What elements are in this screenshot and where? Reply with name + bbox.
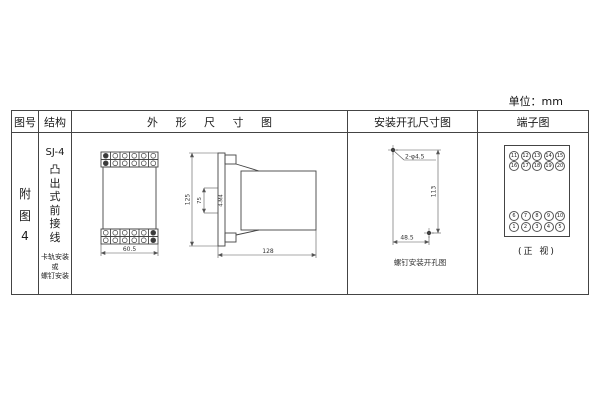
terminal-row: 678910 — [505, 211, 569, 221]
terminal-16: 16 — [509, 161, 519, 171]
side-view — [218, 153, 316, 246]
side-height-dimension — [189, 153, 220, 246]
terminal-row: 12345 — [505, 222, 569, 232]
cell-terminal-diagram: 11121314151617181920 67891012345 (正 视) — [478, 133, 588, 294]
figure-no-char: 4 — [21, 229, 29, 243]
dimension-table: 图号 结构 外 形 尺 寸 图 安装开孔尺寸图 端子图 附 图 4 SJ-4 凸… — [11, 110, 589, 295]
horizontal-dimension — [393, 152, 429, 245]
table-header-row: 图号 结构 外 形 尺 寸 图 安装开孔尺寸图 端子图 — [12, 111, 588, 133]
header-figure-no: 图号 — [12, 111, 39, 132]
terminal-row: 1112131415 — [505, 151, 569, 161]
dim-width-label: 60.5 — [123, 246, 137, 253]
dim-depth-label: 128 — [262, 248, 274, 255]
outline-drawing-svg: 60.5 125 — [72, 133, 348, 294]
header-mounting: 安装开孔尺寸图 — [348, 111, 478, 132]
structure-type-char: 线 — [50, 231, 61, 245]
header-structure: 结构 — [39, 111, 72, 132]
structure-type-char: 前 — [50, 204, 61, 218]
terminal-5: 5 — [555, 222, 565, 232]
mounting-drawing-svg: 2-φ4.5 113 48.5 螺钉安装开孔图 — [348, 133, 478, 294]
terminal-box: 11121314151617181920 67891012345 — [504, 145, 570, 237]
unit-label: 单位：mm — [503, 93, 563, 109]
terminal-8: 8 — [532, 211, 542, 221]
structure-type-char: 出 — [50, 177, 61, 191]
terminal-7: 7 — [521, 211, 531, 221]
terminal-10: 10 — [555, 211, 565, 221]
terminal-18: 18 — [532, 161, 542, 171]
terminal-1: 1 — [509, 222, 519, 232]
side-inner-dimension — [204, 188, 218, 213]
cell-mounting-drawing: 2-φ4.5 113 48.5 螺钉安装开孔图 — [348, 133, 478, 294]
terminal-15: 15 — [555, 151, 565, 161]
terminal-4: 4 — [544, 222, 554, 232]
figure-no-char: 附 — [19, 185, 31, 202]
datasheet-page: 单位：mm 图号 结构 外 形 尺 寸 图 安装开孔尺寸图 端子图 附 图 4 … — [0, 0, 600, 400]
terminal-9: 9 — [544, 211, 554, 221]
mounting-caption: 螺钉安装开孔图 — [394, 257, 447, 267]
dim-height-label: 125 — [185, 194, 192, 206]
terminal-14: 14 — [544, 151, 554, 161]
holes-label: 2-φ4.5 — [405, 154, 425, 161]
terminal-20: 20 — [555, 161, 565, 171]
cell-structure: SJ-4 凸 出 式 前 接 线 卡轨安装 或 螺钉安装 — [39, 133, 72, 294]
terminal-19: 19 — [544, 161, 554, 171]
terminal-2: 2 — [521, 222, 531, 232]
dim-horizontal-label: 48.5 — [400, 235, 414, 242]
mount-note: 卡轨安装 或 螺钉安装 — [41, 253, 69, 282]
cell-figure-no: 附 图 4 — [12, 133, 39, 294]
terminal-3: 3 — [532, 222, 542, 232]
figure-no-char: 图 — [19, 207, 31, 224]
terminal-top-group: 11121314151617181920 — [505, 150, 569, 172]
table-body-row: 附 图 4 SJ-4 凸 出 式 前 接 线 卡轨安装 或 螺钉安装 — [12, 133, 588, 294]
structure-type-char: 凸 — [50, 163, 61, 177]
structure-type-char: 接 — [50, 217, 61, 231]
dim-vertical-label: 113 — [431, 186, 438, 198]
header-outline: 外 形 尺 寸 图 — [72, 111, 348, 132]
terminal-bottom-group: 67891012345 — [505, 211, 569, 233]
terminal-12: 12 — [521, 151, 531, 161]
terminal-13: 13 — [532, 151, 542, 161]
model-label: SJ-4 — [46, 147, 65, 158]
header-terminal: 端子图 — [478, 111, 588, 132]
cell-outline-drawing: 60.5 125 — [72, 133, 348, 294]
structure-type-char: 式 — [50, 190, 61, 204]
terminal-17: 17 — [521, 161, 531, 171]
terminal-row: 1617181920 — [505, 161, 569, 171]
front-view — [101, 152, 158, 244]
dim-screw-label: 4-M4 — [219, 194, 225, 206]
terminal-11: 11 — [509, 151, 519, 161]
terminal-6: 6 — [509, 211, 519, 221]
dim-inner-label: 75 — [197, 197, 203, 204]
terminal-caption: (正 视) — [494, 244, 580, 257]
